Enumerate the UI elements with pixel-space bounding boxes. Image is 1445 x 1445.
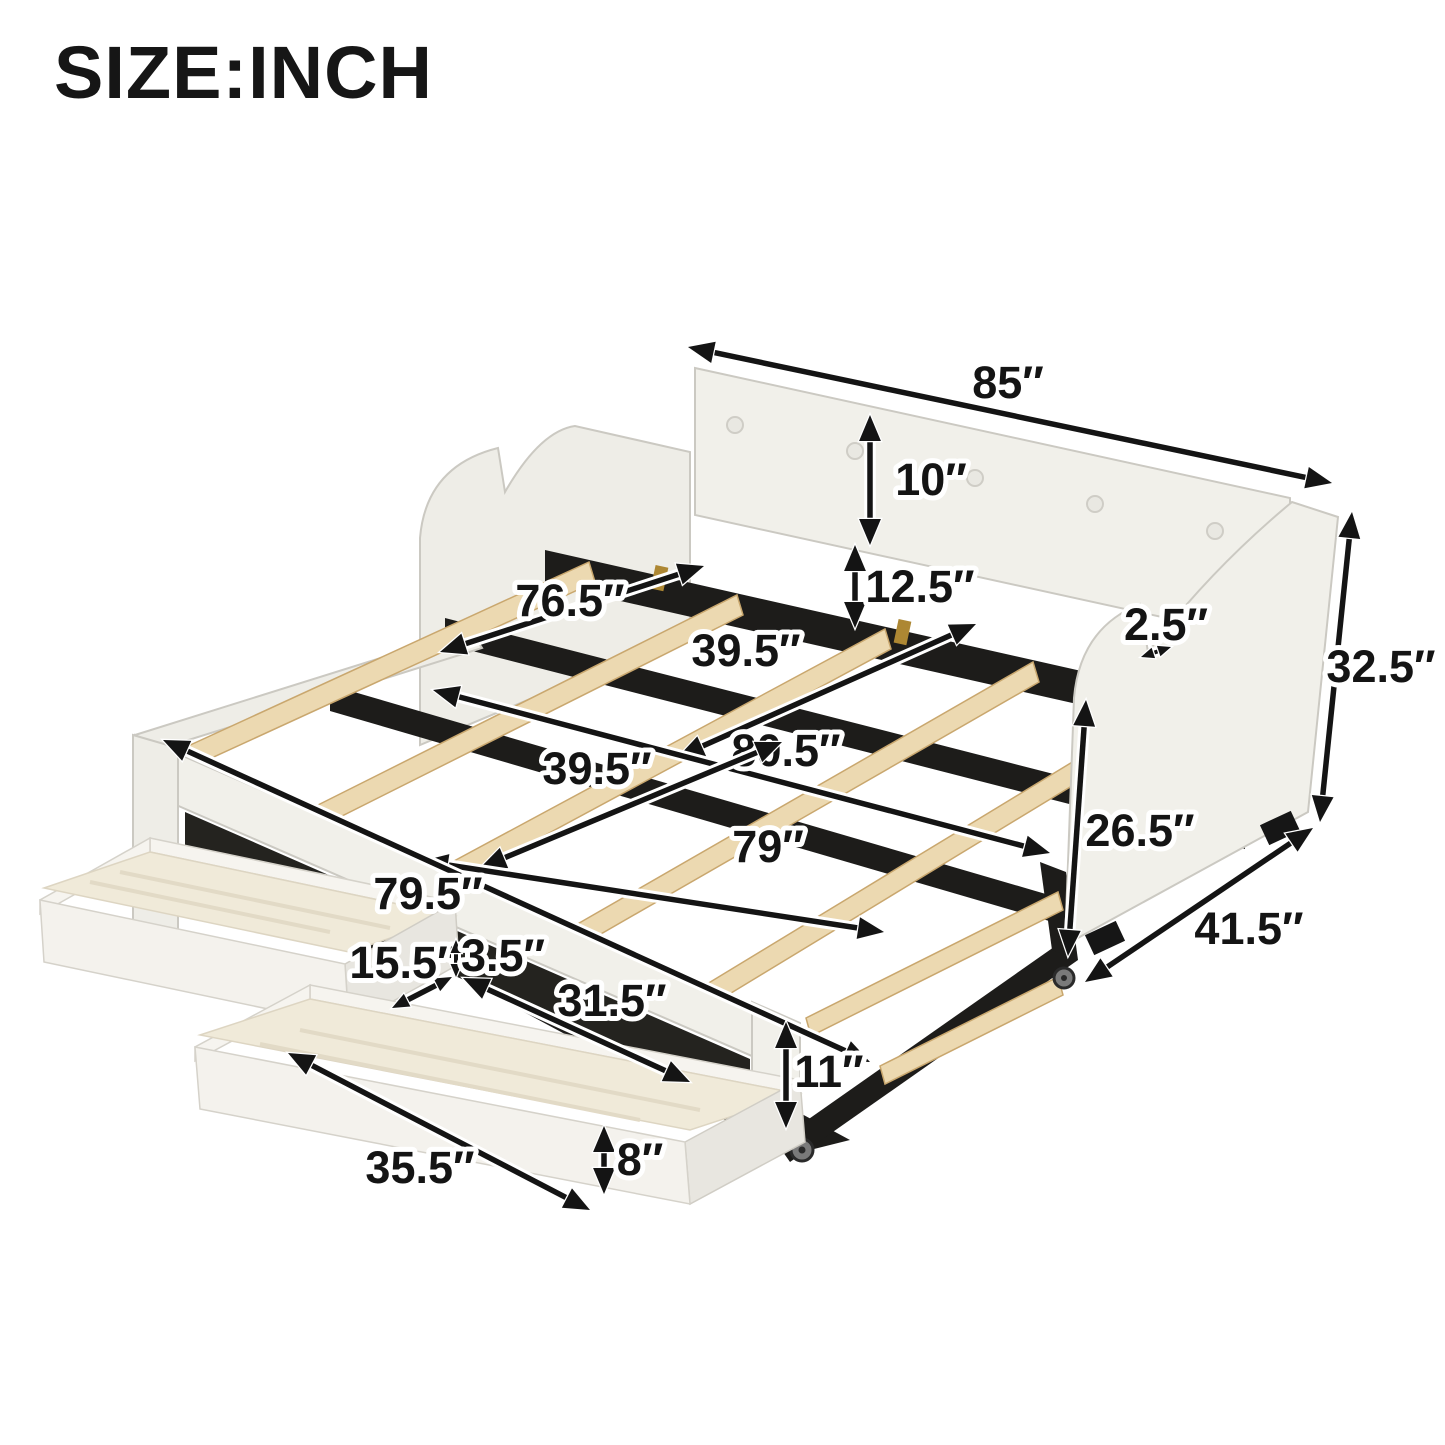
dim-label-height-overall: 32.5″	[1326, 641, 1435, 692]
trundle-wood-slat	[880, 977, 1063, 1084]
dim-label-drawer-inner-length: 31.5″	[557, 975, 666, 1026]
dim-drawer-gap-height: 3.5″	[451, 930, 546, 981]
dim-label-trundle-width: 39.5″	[542, 743, 651, 794]
dim-label-bed-width: 39.5″	[691, 625, 800, 676]
dim-label-length-overall: 85″	[972, 357, 1044, 408]
dim-label-trundle-frame-height: 11″	[794, 1046, 863, 1097]
dim-label-drawer-depth: 15.5″	[349, 937, 458, 988]
dim-arm-step-depth: 2.5″	[1124, 599, 1208, 658]
dim-label-drawer-front-height: 8″	[617, 1134, 664, 1185]
dim-label-inner-length: 76.5″	[515, 575, 624, 626]
dim-label-depth-overall: 41.5″	[1194, 903, 1303, 954]
dim-label-trundle-length: 79″	[732, 821, 804, 872]
dimension-diagram-page: SIZE:INCH	[0, 0, 1445, 1445]
dim-label-back-gap-height: 12.5″	[865, 561, 974, 612]
dim-drawer-front-height: 8″	[593, 1126, 663, 1194]
dim-label-arm-step-depth: 2.5″	[1124, 599, 1208, 650]
dim-label-drawer-gap-height: 3.5″	[461, 930, 545, 981]
dim-label-drawer-length: 35.5″	[365, 1142, 474, 1193]
dim-label-side-panel-height: 26.5″	[1085, 805, 1194, 856]
caster-wheel	[1054, 968, 1074, 988]
dim-label-frame-length: 79.5″	[373, 868, 482, 919]
dim-label-backrest-cushion-height: 10″	[895, 454, 967, 505]
diagram-canvas: 85″10″12.5″2.5″32.5″76.5″39.5″80.5″39.5″…	[0, 0, 1445, 1445]
